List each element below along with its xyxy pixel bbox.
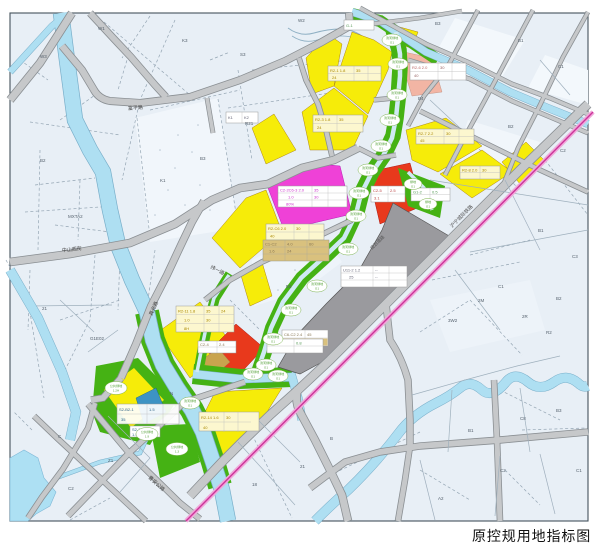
svg-text:C3: C3 (572, 254, 578, 259)
svg-text:25: 25 (349, 275, 354, 280)
svg-text:24: 24 (317, 125, 322, 130)
svg-text:B1: B1 (468, 428, 474, 433)
svg-text:G1: G1 (289, 311, 293, 315)
svg-text:35: 35 (121, 417, 126, 422)
svg-text:40: 40 (203, 425, 208, 430)
svg-text:3.1: 3.1 (374, 196, 380, 201)
svg-text:滨河绿地: 滨河绿地 (184, 398, 196, 403)
svg-text:35: 35 (339, 117, 344, 122)
svg-text:G1: G1 (366, 171, 370, 175)
svg-text:1.2H: 1.2H (113, 389, 120, 393)
svg-text:B3: B3 (435, 21, 441, 26)
svg-text:G1: G1 (426, 205, 430, 209)
svg-text:绿地: 绿地 (425, 199, 431, 204)
svg-text:滨河绿地: 滨河绿地 (386, 35, 398, 40)
svg-text:W2: W2 (298, 18, 305, 23)
svg-text:B3: B3 (556, 408, 562, 413)
svg-text:C2: C2 (68, 486, 74, 491)
svg-text:2M: 2M (478, 298, 485, 303)
svg-text:G-1: G-1 (346, 23, 353, 28)
svg-text:G1: G1 (379, 147, 383, 151)
svg-text:35: 35 (356, 68, 361, 73)
svg-text:30: 30 (482, 167, 487, 172)
svg-text:G1: G1 (315, 287, 319, 291)
svg-text:G1: G1 (395, 96, 399, 100)
svg-text:公共绿地: 公共绿地 (110, 383, 122, 388)
svg-text:30: 30 (314, 195, 319, 200)
svg-text:B3: B3 (200, 156, 206, 161)
svg-text:滨河绿地: 滨河绿地 (272, 371, 284, 376)
svg-text:G1: G1 (388, 121, 392, 125)
svg-text:B1: B1 (538, 228, 544, 233)
svg-text:R2-8 2.0: R2-8 2.0 (462, 167, 478, 172)
svg-text:C2-2C6-3 2.0: C2-2C6-3 2.0 (280, 188, 305, 193)
svg-text:80%: 80% (286, 202, 294, 207)
svg-text:G1: G1 (271, 340, 275, 344)
svg-text:1.5: 1.5 (149, 407, 155, 412)
svg-text:21: 21 (42, 306, 48, 311)
svg-text:R2-3 1.8: R2-3 1.8 (315, 117, 331, 122)
svg-text:滨河绿地: 滨河绿地 (391, 90, 403, 95)
svg-text:原控规用地指标图: 原控规用地指标图 (472, 528, 591, 544)
svg-text:公共绿地: 公共绿地 (141, 429, 153, 434)
svg-text:G1: G1 (346, 250, 350, 254)
svg-text:2R: 2R (522, 314, 529, 319)
svg-text:S2-B2-1: S2-B2-1 (119, 407, 134, 412)
svg-text:30: 30 (226, 415, 231, 420)
svg-text:G1E02: G1E02 (90, 336, 105, 341)
svg-text:滨河绿地: 滨河绿地 (247, 369, 259, 374)
svg-text:R21: R21 (245, 121, 254, 126)
svg-text:35: 35 (314, 188, 319, 193)
svg-text:C8: C8 (520, 416, 526, 421)
svg-text:S3: S3 (240, 52, 246, 57)
svg-text:G1: G1 (264, 366, 268, 370)
svg-text:1.3: 1.3 (175, 450, 180, 454)
svg-text:C1-C2: C1-C2 (265, 242, 277, 247)
svg-text:B: B (330, 436, 333, 441)
svg-text:18: 18 (252, 482, 258, 487)
svg-text:30: 30 (296, 226, 301, 231)
svg-text:C1: C1 (558, 64, 564, 69)
svg-text:G1: G1 (396, 65, 400, 69)
svg-text:1.0: 1.0 (288, 195, 294, 200)
svg-text:24: 24 (221, 309, 226, 314)
svg-text:K2: K2 (244, 115, 250, 120)
svg-text:B2: B2 (508, 124, 514, 129)
svg-text:60: 60 (309, 242, 314, 247)
svg-text:R2: R2 (546, 330, 552, 335)
svg-text:R2-C6 2.0: R2-C6 2.0 (268, 226, 287, 231)
svg-text:2.5: 2.5 (390, 188, 396, 193)
svg-text:R2-1 1.8: R2-1 1.8 (330, 68, 346, 73)
svg-text:滨河绿地: 滨河绿地 (353, 188, 365, 193)
svg-text:G1: G1 (251, 375, 255, 379)
svg-text:0.5: 0.5 (432, 189, 438, 194)
svg-text:R2-6 2.0: R2-6 2.0 (412, 65, 428, 70)
svg-text:3W2: 3W2 (448, 318, 458, 323)
svg-text:C1: C1 (576, 468, 582, 473)
svg-text:N: N (170, 391, 173, 396)
svg-text:1.9: 1.9 (145, 435, 150, 439)
svg-text:24: 24 (287, 249, 292, 254)
svg-text:G1: G1 (411, 185, 415, 189)
svg-text:40: 40 (270, 234, 275, 239)
svg-text:K3: K3 (182, 38, 188, 43)
svg-text:40: 40 (414, 73, 419, 78)
svg-text:B1: B1 (518, 38, 524, 43)
svg-text:8H: 8H (184, 326, 189, 331)
svg-text:21: 21 (300, 464, 306, 469)
svg-text:B4: B4 (418, 96, 424, 101)
svg-text:C1: C1 (498, 284, 504, 289)
svg-text:1.0: 1.0 (184, 317, 190, 322)
svg-text:滨河绿地: 滨河绿地 (392, 59, 404, 64)
svg-text:C2-5: C2-5 (373, 188, 382, 193)
svg-text:U11-2 1.2: U11-2 1.2 (343, 268, 361, 273)
svg-text:MXTA2: MXTA2 (68, 214, 83, 219)
svg-text:Z1: Z1 (108, 458, 114, 463)
svg-text:G1: G1 (354, 217, 358, 221)
svg-text:R2-14 1.6: R2-14 1.6 (201, 415, 219, 420)
svg-text:滨河绿地: 滨河绿地 (362, 165, 374, 170)
svg-text:C2-4: C2-4 (200, 342, 209, 347)
svg-text:滨河绿地: 滨河绿地 (260, 360, 272, 365)
svg-text:45: 45 (307, 332, 312, 337)
svg-text:W3: W3 (40, 54, 47, 59)
svg-text:公共绿地: 公共绿地 (171, 444, 183, 449)
svg-text:滨河绿地: 滨河绿地 (350, 211, 362, 216)
svg-text:A2: A2 (438, 496, 444, 501)
svg-text:B2: B2 (40, 158, 46, 163)
svg-text:滨河绿地: 滨河绿地 (267, 334, 279, 339)
svg-text:30: 30 (440, 65, 445, 70)
svg-text:G1: G1 (390, 41, 394, 45)
svg-text:C6-C2 2.4: C6-C2 2.4 (284, 332, 303, 337)
svg-text:C2: C2 (560, 148, 566, 153)
svg-text:C2: C2 (500, 468, 506, 473)
svg-text:绿地: 绿地 (410, 179, 416, 184)
svg-text:滨河绿地: 滨河绿地 (384, 115, 396, 120)
svg-text:K1: K1 (160, 178, 166, 183)
svg-text:45: 45 (420, 138, 425, 143)
svg-text:滨河绿地: 滨河绿地 (375, 141, 387, 146)
svg-text:E8: E8 (286, 284, 292, 289)
svg-text:G1: G1 (188, 404, 192, 408)
svg-text:滨河绿地: 滨河绿地 (311, 281, 323, 286)
svg-text:B2: B2 (556, 296, 562, 301)
svg-text:4.0: 4.0 (287, 242, 293, 247)
svg-text:G1-2: G1-2 (413, 189, 423, 194)
svg-text:W1: W1 (98, 26, 105, 31)
svg-text:G1: G1 (276, 377, 280, 381)
svg-text:滨河绿地: 滨河绿地 (285, 305, 297, 310)
svg-text:2.4: 2.4 (219, 342, 225, 347)
svg-text:30: 30 (206, 317, 211, 322)
svg-text:1.6: 1.6 (269, 249, 275, 254)
svg-text:30: 30 (446, 131, 451, 136)
svg-text:滨河绿地: 滨河绿地 (342, 244, 354, 249)
svg-text:K1: K1 (228, 115, 234, 120)
svg-text:R2-7 2.2: R2-7 2.2 (418, 131, 434, 136)
svg-text:0.8: 0.8 (296, 341, 302, 346)
svg-text:G1: G1 (357, 194, 361, 198)
svg-text:R2-11 1.8: R2-11 1.8 (178, 309, 196, 314)
svg-text:35: 35 (206, 309, 211, 314)
svg-text:24: 24 (332, 75, 337, 80)
svg-text:富平路: 富平路 (128, 104, 143, 112)
